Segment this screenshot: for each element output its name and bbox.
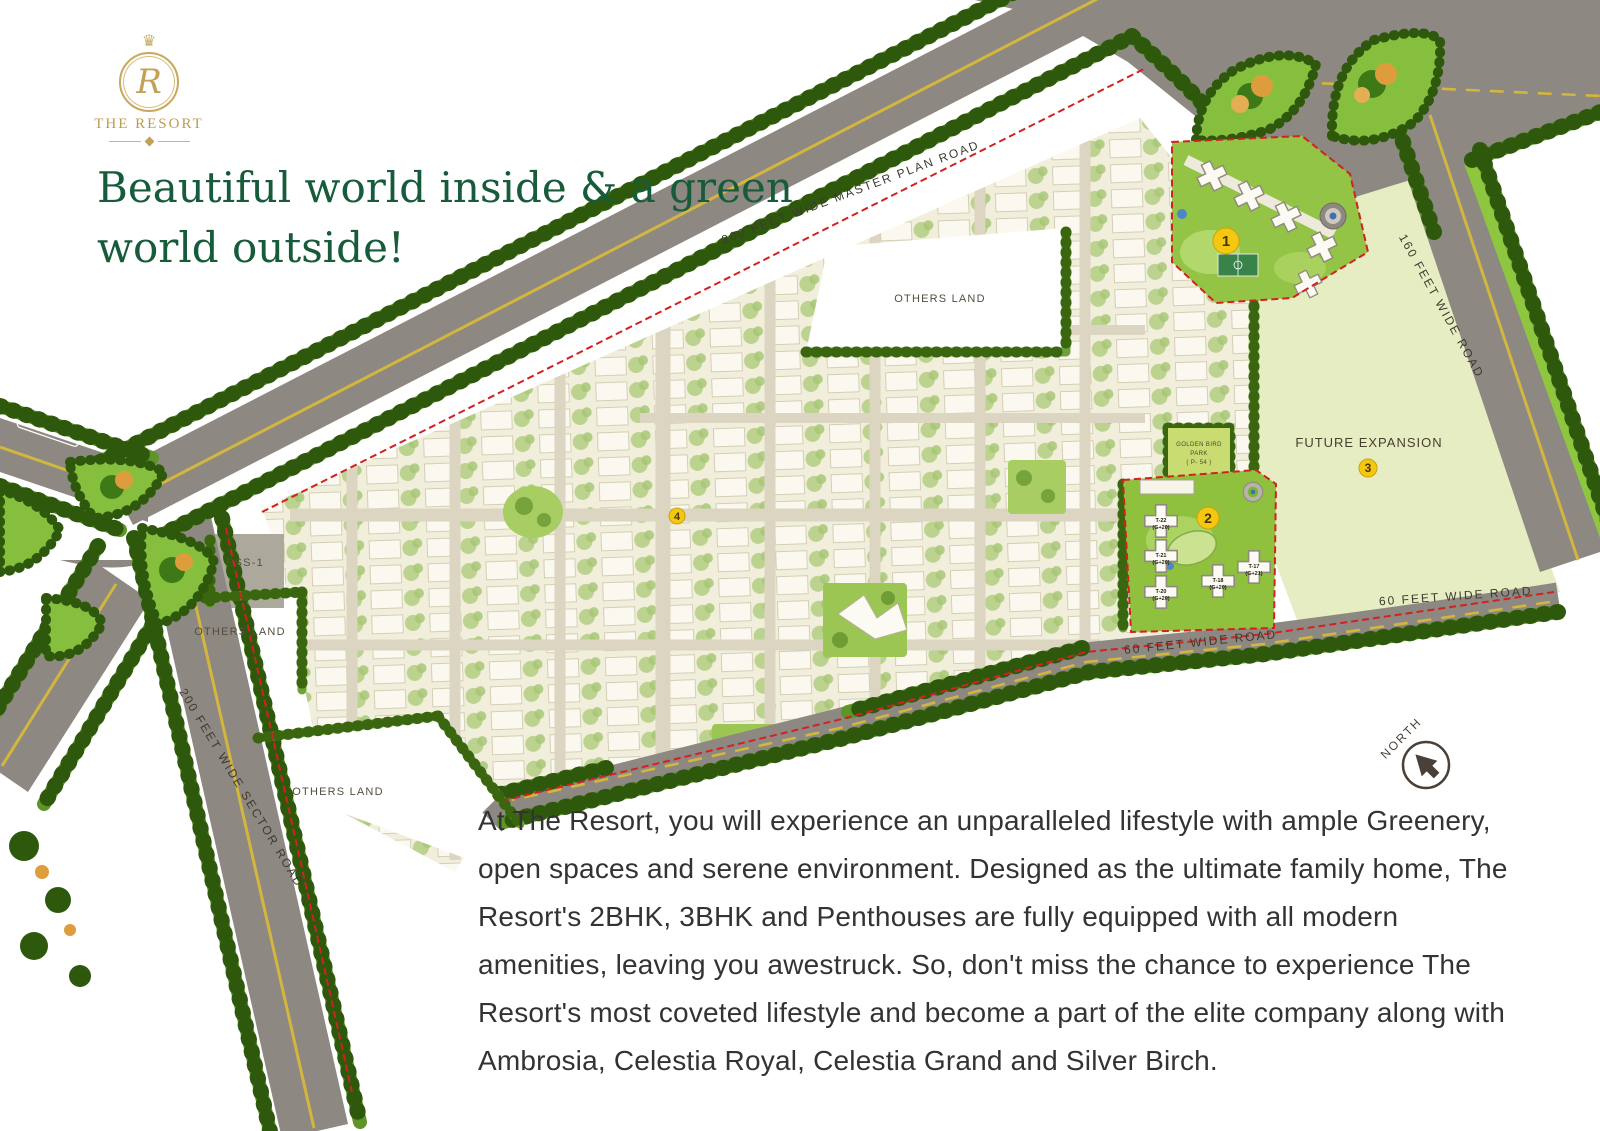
logo-emblem: R bbox=[119, 52, 179, 112]
golden-bird-park: GOLDEN BIRD PARK ( P- 54 ) bbox=[1168, 428, 1230, 478]
future-expansion-label: FUTURE EXPANSION bbox=[1295, 435, 1442, 450]
description-paragraph: At The Resort, you will experience an un… bbox=[478, 797, 1516, 1085]
roundabout bbox=[1320, 203, 1346, 229]
tower-label: T-22 bbox=[1155, 518, 1166, 524]
tower-label: T-21 bbox=[1155, 553, 1166, 559]
svg-text:PARK: PARK bbox=[1190, 451, 1208, 457]
brand-name: THE RESORT bbox=[84, 116, 214, 133]
roundabout bbox=[1243, 482, 1263, 502]
svg-text:4: 4 bbox=[674, 511, 681, 523]
marker-1: 1 bbox=[1213, 228, 1239, 254]
tower-cluster-2: T-22 (G+20) T-21 (G+20) T-20 (G+20) T-18… bbox=[1123, 470, 1276, 632]
tower-label: T-18 bbox=[1212, 578, 1223, 584]
north-indicator: NORTH bbox=[1378, 715, 1449, 788]
golden-bird-park-label: GOLDEN BIRD bbox=[1176, 442, 1222, 448]
crown-icon: ♛ bbox=[84, 34, 214, 50]
marker-2: 2 bbox=[1197, 507, 1219, 529]
flourish-ornament-icon bbox=[84, 138, 214, 145]
svg-text:(G+20): (G+20) bbox=[1152, 525, 1169, 531]
logo-monogram: R bbox=[136, 62, 162, 102]
svg-text:2: 2 bbox=[1204, 510, 1212, 526]
svg-text:(G+20): (G+20) bbox=[1152, 560, 1169, 566]
svg-text:(G+20): (G+20) bbox=[1152, 596, 1169, 602]
tower-label: T-20 bbox=[1155, 589, 1166, 595]
svg-text:(G+20): (G+20) bbox=[1209, 585, 1226, 591]
tower-label: T-17 bbox=[1248, 564, 1259, 570]
marker-4: 4 bbox=[669, 508, 685, 524]
svg-text:( P- 54 ): ( P- 54 ) bbox=[1186, 460, 1211, 466]
svg-text:1: 1 bbox=[1222, 233, 1230, 250]
others-land-label-left: OTHERS LAND bbox=[194, 626, 285, 638]
page-headline: Beautiful world inside & a green world o… bbox=[97, 158, 807, 277]
marker-3: 3 bbox=[1359, 459, 1377, 477]
svg-text:3: 3 bbox=[1365, 461, 1372, 475]
others-land-label-bottom: OTHERS LAND bbox=[292, 786, 383, 798]
ess-label: ESS-1 bbox=[226, 557, 264, 569]
svg-text:(G+21): (G+21) bbox=[1245, 571, 1262, 577]
resort-logo: ♛ R THE RESORT bbox=[84, 34, 214, 145]
others-land-label-top: OTHERS LAND bbox=[894, 293, 985, 305]
